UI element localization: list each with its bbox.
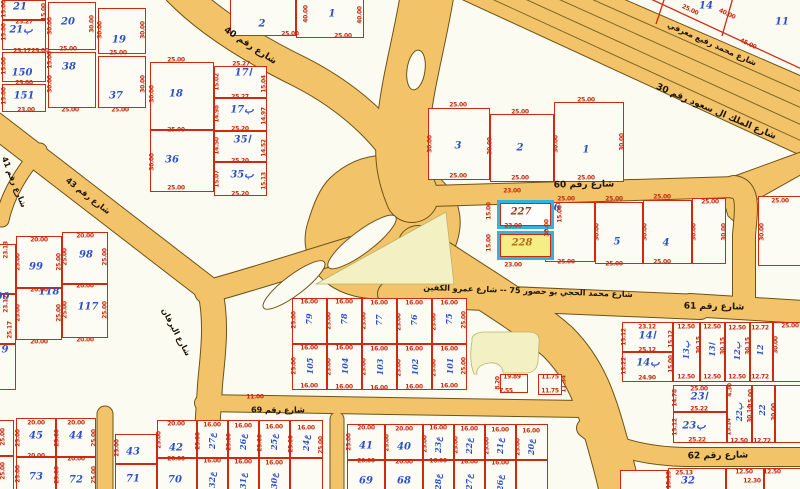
parcel-number: 19 [112, 35, 126, 46]
dimension-label: 40.00 [303, 5, 310, 22]
dimension-label: 15.00 [47, 51, 54, 68]
dimension-label: 30.00 [140, 75, 147, 92]
dimension-label: 23.00 [503, 188, 520, 195]
dimension-label: 12.50 [728, 374, 745, 381]
dimension-label: 16.00 [234, 459, 251, 466]
dimension-label: 30.00 [89, 15, 96, 32]
parcel-number: 4 [663, 238, 670, 249]
dimension-label: 25.00 [484, 437, 491, 454]
parcel-number: 13ا [707, 343, 717, 356]
dimension-label: 30.00 [619, 133, 626, 150]
dimension-label: 30.00 [721, 223, 728, 240]
dimension-label: 25.00 [62, 301, 69, 318]
dimension-label: 12.50 [677, 324, 694, 331]
dimension-label: 14.50 [214, 137, 221, 154]
street-label: شارع رقم 69 [251, 406, 305, 415]
parcel-number: 228 [512, 238, 533, 249]
parcel-number: 38 [62, 62, 76, 73]
dimension-label: 30.00 [691, 223, 698, 240]
dimension-label: 16.00 [335, 345, 352, 352]
parcel-number: 12 [755, 344, 765, 355]
parcel-number: 30ع [269, 473, 279, 489]
dimension-label: 16.00 [265, 460, 282, 467]
dimension-label: 25.00 [653, 194, 670, 201]
dimension-label: 20.00 [67, 456, 84, 463]
parcel-number: 73 [29, 472, 43, 483]
dimension-label: 15.13 [261, 172, 268, 189]
dimension-label: 25.00 [109, 50, 126, 57]
dimension-label: 23.00 [361, 312, 368, 329]
street-label: شارع رقم 61 [684, 301, 745, 312]
dimension-label: 23.17 [3, 295, 10, 312]
dimension-label: 15.13 [666, 471, 673, 488]
parcel-number: 22 [757, 404, 767, 415]
road [734, 187, 746, 300]
parcel-number: 71 [126, 474, 140, 485]
dimension-label: 30.00 [47, 17, 54, 34]
street-label: شارع رقم 62 [688, 450, 749, 461]
dimension-label: 16.00 [335, 384, 352, 391]
dimension-label: 20.00 [167, 421, 184, 428]
dimension-label: 12.72 [751, 325, 768, 332]
dimension-label: 25.27 [231, 94, 248, 101]
dimension-label: 25.00 [515, 438, 522, 455]
dimension-label: 23.12 [638, 324, 655, 331]
dimension-label: 25.00 [226, 433, 233, 450]
dimension-label: 15.00 [748, 389, 755, 406]
dimension-label: 12.50 [728, 325, 745, 332]
parcel-36 [150, 130, 214, 192]
parcel-number: 119 [0, 345, 8, 356]
parcel-number: 78 [339, 313, 349, 324]
parcel-number: 14 [699, 1, 713, 12]
parcel-number: 21ع [495, 438, 505, 454]
parcel-number: 5 [614, 237, 621, 248]
dimension-label: 25.00 [59, 46, 76, 53]
parcel-number: 151 [14, 91, 35, 102]
dimension-label: 25.00 [102, 248, 109, 265]
dimension-label: 30.00 [149, 85, 156, 102]
dimension-label: 13.22 [621, 357, 628, 374]
parcel-number: 23ا [691, 392, 708, 403]
parcel-number: 69 [359, 476, 373, 487]
dimension-label: 16.00 [405, 300, 422, 307]
parcel [620, 470, 668, 489]
parcel-number: 18 [169, 89, 183, 100]
dimension-label: 20.00 [357, 425, 374, 432]
dimension-label: 12.72 [751, 374, 768, 381]
dimension-label: 25.00 [91, 466, 98, 483]
parcel-4 [643, 200, 692, 264]
parcel-number: 22ع [464, 438, 474, 454]
dimension-label: 20.00 [67, 420, 84, 427]
dimension-label: 15.00 [486, 202, 493, 219]
dimension-label: 14.78 [672, 389, 679, 406]
dimension-label: 15.04 [261, 75, 268, 92]
dimension-label: 25.00 [318, 436, 325, 453]
dimension-label: 12.50 [763, 469, 780, 476]
dimension-label: 25.00 [156, 431, 163, 448]
dimension-label: 23.00 [17, 107, 34, 114]
dimension-label: 30.00 [47, 75, 54, 92]
dimension-label: 23.00 [396, 313, 403, 330]
dimension-label: 16.00 [440, 300, 457, 307]
parcel-number: 1 [583, 145, 590, 156]
parcel [290, 458, 323, 489]
dimension-label: 25.00 [449, 173, 466, 180]
dimension-label: 16.00 [429, 425, 446, 432]
dimension-label: 25.00 [690, 386, 707, 393]
dimension-label: 30.00 [642, 223, 649, 240]
parcel-number: 20ع [526, 439, 536, 455]
dimension-label: 20.00 [167, 456, 184, 463]
parcel-number: 227 [511, 207, 532, 218]
dimension-label: 25.00 [653, 259, 670, 266]
dimension-label: 16.00 [300, 345, 317, 352]
parcel-number: 117 [78, 302, 99, 313]
dimension-label: 25.00 [257, 434, 264, 451]
dimension-label: 25.27 [15, 19, 32, 26]
dimension-label: 20.00 [395, 426, 412, 433]
dimension-label: 25.20 [231, 126, 248, 133]
dimension-label: 25.17 [7, 321, 14, 338]
dimension-label: 23.00 [396, 359, 403, 376]
parcel-number: 27ع [464, 474, 474, 489]
parcel-number: 11 [775, 17, 789, 28]
dimension-label: 30.00 [97, 21, 104, 38]
parcel-number: 12ب [732, 342, 742, 361]
parcel-number: 76 [409, 314, 419, 325]
parcel-number: 68 [397, 476, 411, 487]
dimension-label: 20.00 [395, 459, 412, 466]
parcel-number: 43 [126, 447, 140, 458]
dimension-label: 16.00 [297, 425, 314, 432]
parcel-number: 22ب [734, 403, 744, 422]
dimension-label: 16.00 [335, 299, 352, 306]
dimension-label: 25.00 [346, 433, 353, 450]
dimension-label: 25.00 [15, 429, 22, 446]
dimension-label: 16.00 [370, 300, 387, 307]
dimension-label: 20.00 [357, 458, 374, 465]
dimension-label: 30.15 [745, 337, 752, 354]
parcel-number: 17ا [235, 68, 252, 79]
dimension-label: 24.90 [638, 375, 655, 382]
dimension-label: 15.07 [214, 170, 221, 187]
dimension-label: 25.00 [291, 311, 298, 328]
dimension-label: 12.50 [730, 438, 747, 445]
dimension-label: 12.50 [677, 374, 694, 381]
dimension-label: 25.00 [334, 33, 351, 40]
parcel-number: 37 [109, 91, 123, 102]
parcel-number: 72 [69, 475, 83, 486]
dimension-label: 16.00 [460, 426, 477, 433]
dimension-label: 14.98 [214, 105, 221, 122]
dimension-label: 25.00 [449, 102, 466, 109]
dimension-label: 25.00 [15, 465, 22, 482]
dimension-label: 16.00 [440, 383, 457, 390]
dimension-label: 25.27 [232, 61, 249, 68]
parcel-number: 2 [517, 143, 524, 154]
parcel-number: 75 [444, 313, 454, 324]
dimension-label: 30.00 [427, 135, 434, 152]
dimension-label: 23.00 [326, 312, 333, 329]
dimension-label: 25.00 [288, 435, 295, 452]
dimension-label: 23.00 [431, 313, 438, 330]
dimension-label: 30.00 [487, 137, 494, 154]
dimension-label: 12.50 [703, 374, 720, 381]
dimension-label: 16.00 [370, 385, 387, 392]
dimension-label: 25.00 [195, 432, 202, 449]
parcel-number: 28ع [433, 474, 443, 489]
dimension-label: 25.00 [701, 199, 718, 206]
dimension-label: 25.00 [291, 357, 298, 374]
parcel-1 [554, 102, 624, 182]
dimension-label: 25.00 [0, 428, 7, 445]
dimension-label: 16.00 [203, 458, 220, 465]
parcel-number: 2 [259, 19, 266, 30]
dimension-label: 15.14 [726, 418, 733, 435]
dimension-label: 25.00 [461, 311, 468, 328]
parcel-number: 20 [61, 17, 75, 28]
dimension-label: 16.00 [300, 299, 317, 306]
dimension-label: 25.00 [605, 196, 622, 203]
parcel-number: 32 [681, 476, 695, 487]
dimension-label: 25.00 [557, 259, 574, 266]
dimension-label: 25.00 [62, 248, 69, 265]
dimension-label: 16.00 [491, 460, 508, 467]
parcel-number: 31ع [238, 473, 248, 489]
dimension-label: 20.00 [30, 237, 47, 244]
dimension-label: 30.00 [759, 223, 766, 240]
dimension-label: 4.30 [727, 383, 734, 397]
dimension-label: 40.00 [357, 6, 364, 23]
dimension-label: 25.00 [0, 462, 7, 479]
dimension-label: 25.00 [167, 127, 184, 134]
dimension-label: 25.13 [675, 470, 692, 477]
dimension-label: 25.00 [511, 109, 528, 116]
dimension-label: 25.00 [114, 439, 121, 456]
parcel-number: 26ع [495, 475, 505, 489]
dimension-label: 16.00 [460, 459, 477, 466]
dimension-label: 25.00 [557, 196, 574, 203]
parcel-number: 99 [29, 262, 43, 273]
parcel-number: 14ا [639, 331, 656, 342]
dimension-label: 30.15 [720, 337, 727, 354]
parcel-number: 98 [79, 250, 93, 261]
parcel-number: 24ع [301, 435, 311, 451]
dimension-label: 23.00 [504, 223, 521, 230]
dimension-label: 30.00 [140, 21, 147, 38]
dimension-label: 19.89 [503, 374, 520, 381]
parcel-number: 36 [165, 155, 179, 166]
dimension-label: 15.00 [486, 234, 493, 251]
dimension-label: 20.00 [30, 287, 47, 294]
dimension-label: 23.00 [431, 359, 438, 376]
parcel-number: 23ع [433, 437, 443, 453]
dimension-label: 25.20 [231, 158, 248, 165]
dimension-label: 14.97 [261, 107, 268, 124]
dimension-label: 14.52 [261, 139, 268, 156]
parcel-number: 41 [359, 441, 373, 452]
dimension-label: 25.00 [111, 107, 128, 114]
dimension-label: 15.00 [557, 205, 564, 222]
dimension-label: 12.30 [743, 478, 760, 485]
parcel-5 [595, 202, 643, 264]
dimension-label: 11.75 [541, 374, 558, 381]
dimension-label: 20.00 [27, 420, 44, 427]
dimension-label: 11.75 [541, 388, 558, 395]
dimension-label: 15.00 [1, 23, 8, 40]
dimension-label: 25.00 [15, 304, 22, 321]
dimension-label: 25.00 [422, 435, 429, 452]
dimension-label: 25.22 [688, 437, 705, 444]
parcel-number: 150 [12, 68, 33, 79]
dimension-label: 30.00 [553, 135, 560, 152]
dimension-label: 25.00 [91, 429, 98, 446]
dimension-label: 23.00 [504, 262, 521, 269]
dimension-label: 15.00 [1, 0, 8, 17]
dimension-label: 15.12 [672, 418, 679, 435]
dimension-label: 25.00 [771, 198, 788, 205]
parcel-number: 103 [375, 359, 385, 376]
dimension-label: 25.00 [54, 466, 61, 483]
parcel-number: 79 [304, 313, 314, 324]
dimension-label: 25.00 [54, 429, 61, 446]
dimension-label: 16.00 [370, 346, 387, 353]
parcel-number: 45 [29, 431, 43, 442]
dimension-label: 20.00 [27, 453, 44, 460]
dimension-label: 16.00 [405, 384, 422, 391]
dimension-label: 16.00 [405, 346, 422, 353]
dimension-label: 25.00 [167, 57, 184, 64]
dimension-label: 12.50 [703, 324, 720, 331]
parcel-number: 101 [445, 358, 455, 375]
dimension-label: 30.15 [696, 336, 703, 353]
dimension-label: 30.14 [747, 405, 754, 422]
open-plot [471, 332, 539, 374]
dimension-label: 15.12 [621, 328, 628, 345]
dimension-label: 25.00 [102, 301, 109, 318]
parcel-number: 40 [397, 442, 411, 453]
parcel-number: 23ب [682, 421, 705, 432]
dimension-label: 30.00 [594, 223, 601, 240]
dimension-label: 30.00 [149, 153, 156, 170]
dimension-label: 15.00 [1, 87, 8, 104]
parcel-number: 104 [340, 358, 350, 375]
parcel-number: 17ب [230, 105, 253, 116]
road [402, 0, 428, 196]
dimension-label: 15.12 [668, 330, 675, 347]
dimension-label: 20.00 [76, 337, 93, 344]
parcel-number: 25ع [269, 434, 279, 450]
dimension-label: 25.00 [384, 434, 391, 451]
dimension-label: 16.00 [491, 427, 508, 434]
dimension-label: 20.00 [76, 283, 93, 290]
parcel-38 [48, 52, 96, 108]
parcel-number: 70 [168, 475, 182, 486]
parcel-number: 102 [410, 359, 420, 376]
dimension-label: 25.12 [638, 347, 655, 354]
dimension-label: 30.00 [771, 403, 778, 420]
dimension-label: 16.00 [429, 458, 446, 465]
dimension-label: 11.34 [561, 375, 568, 392]
parcel-number: 35ا [234, 135, 251, 146]
dimension-label: 15.02 [214, 73, 221, 90]
dimension-label: 23.00 [361, 358, 368, 375]
dimension-label: 20.00 [76, 233, 93, 240]
parcel-number: 13ب [681, 341, 691, 360]
dimension-label: 25.00 [167, 185, 184, 192]
dimension-label: 23.00 [326, 358, 333, 375]
parcel-number: 21 [13, 2, 27, 13]
dimension-label: 8.20 [495, 376, 502, 390]
dimension-label: 25.22 [690, 406, 707, 413]
dimension-label: 25.00 [577, 97, 594, 104]
dimension-label: 30.00 [773, 336, 780, 353]
parcel-number: 42 [169, 443, 183, 454]
dimension-label: 15.00 [1, 57, 8, 74]
parcel-number: 26ع [238, 434, 248, 450]
dimension-label: 20.00 [30, 339, 47, 346]
dimension-label: 23.13 [3, 241, 10, 258]
parcel-number: 32ع [207, 472, 217, 488]
dimension-label: 16.00 [203, 422, 220, 429]
dimension-label: 25.00 [511, 175, 528, 182]
dimension-label: 25.00 [605, 261, 622, 268]
dimension-label: 16.00 [265, 424, 282, 431]
map-stage: 2121ب201938371501511817ا17ب3635ا35ب21321… [0, 0, 800, 489]
dimension-label: 11.00 [246, 394, 263, 401]
dimension-label: 25.00 [461, 357, 468, 374]
parcel-number: 14ب [636, 358, 659, 369]
parcel-number: 77 [374, 314, 384, 325]
parcel-number: 105 [305, 358, 315, 375]
dimension-label: 16.00 [300, 383, 317, 390]
parcel-number: 27ع [207, 433, 217, 449]
dimension-label: 16.00 [234, 423, 251, 430]
dimension-label: 12.50 [735, 469, 752, 476]
parcel-number: 1 [329, 9, 336, 20]
dimension-label: 15.00 [668, 355, 675, 372]
dimension-label: 25.00 [781, 323, 798, 330]
parcel-number: 35ب [230, 170, 253, 181]
dimension-label: 16.00 [440, 346, 457, 353]
parcel [516, 460, 548, 489]
dimension-label: 25.00 [453, 436, 460, 453]
dimension-label: 25.00 [15, 80, 32, 87]
parcel-number: 44 [69, 431, 83, 442]
parcel [775, 385, 800, 443]
dimension-label: 12.72 [753, 438, 770, 445]
dimension-label: 25.00 [281, 31, 298, 38]
dimension-label: 25.00 [61, 107, 78, 114]
dimension-label: 30.00 [544, 219, 551, 236]
dimension-label: 25.17 [13, 48, 30, 55]
parcel-number: 21ب [9, 25, 32, 36]
dimension-label: 25.20 [231, 191, 248, 198]
street-label: شارع رقم 60 [554, 179, 615, 190]
dimension-label: 25.00 [15, 253, 22, 270]
parcel-number: 3 [455, 141, 462, 152]
dimension-label: 16.00 [522, 428, 539, 435]
